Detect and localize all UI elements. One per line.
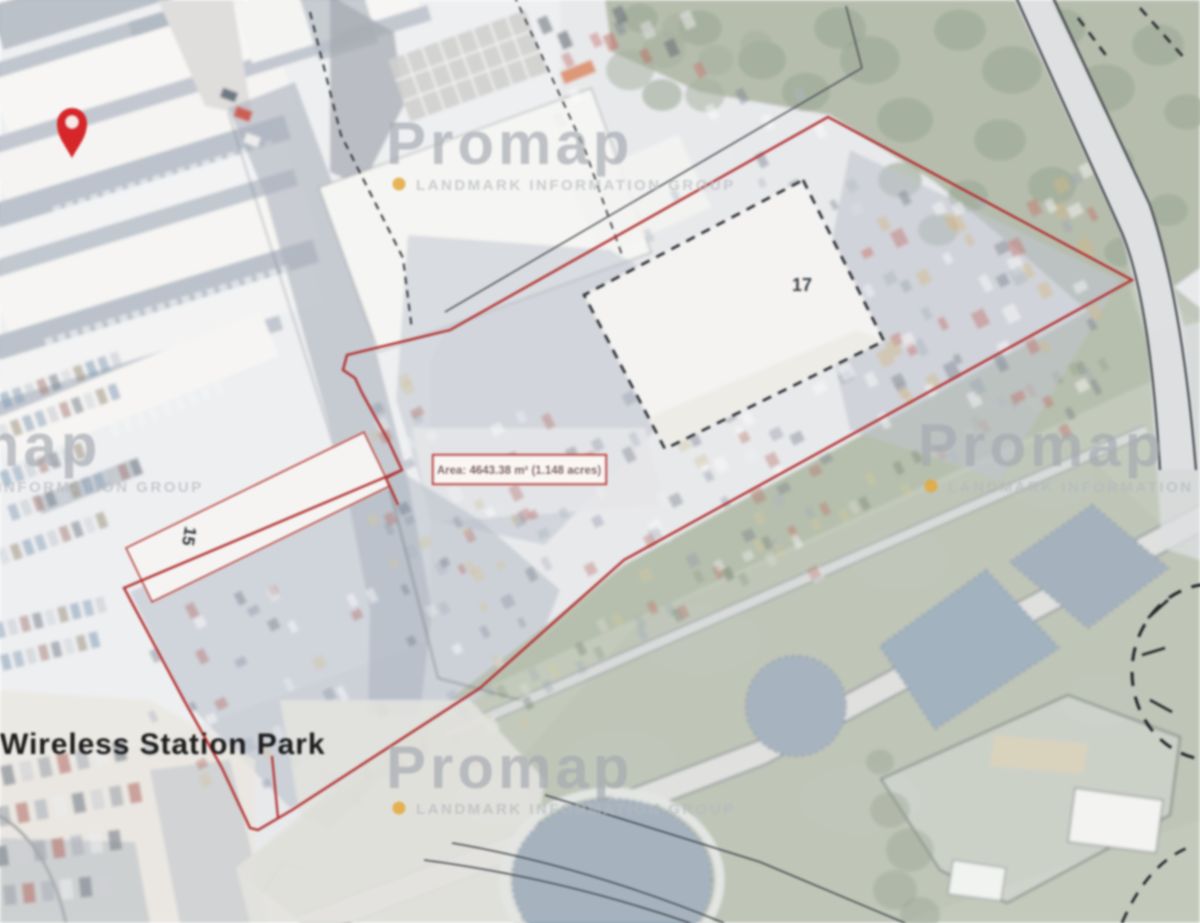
svg-text:Promap: Promap [386,110,633,177]
svg-text:LANDMARK INFORMATION GROUP: LANDMARK INFORMATION GROUP [416,177,736,194]
svg-text:LANDMARK INFORMATION GROUP: LANDMARK INFORMATION GROUP [0,479,204,496]
svg-text:15: 15 [178,525,200,547]
svg-text:17: 17 [792,275,812,295]
svg-text:Promap: Promap [0,412,101,479]
svg-text:LANDMARK INFORMATION GROUP: LANDMARK INFORMATION GROUP [948,479,1200,496]
svg-text:LANDMARK INFORMATION GROUP: LANDMARK INFORMATION GROUP [416,801,736,818]
svg-text:Area: 4643.38 m² (1.148 acres): Area: 4643.38 m² (1.148 acres) [437,465,601,477]
svg-text:Promap: Promap [386,734,633,801]
svg-text:Wireless Station Park: Wireless Station Park [0,728,325,761]
svg-text:Promap: Promap [918,412,1165,479]
